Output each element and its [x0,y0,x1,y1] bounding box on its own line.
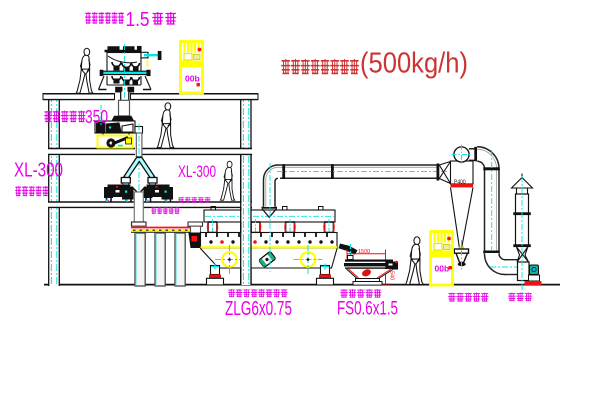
svg-text:00b: 00b [185,74,200,84]
svg-text:350: 350 [85,106,108,127]
svg-text:540: 540 [389,271,395,280]
svg-text:XL-300: XL-300 [178,163,216,181]
svg-text:P400: P400 [454,180,466,186]
svg-text:1500: 1500 [358,249,370,255]
svg-text:ZLG6x0.75: ZLG6x0.75 [225,298,292,320]
svg-text:1.5: 1.5 [126,8,150,31]
svg-text:(500kg/h): (500kg/h) [360,48,468,80]
svg-text:00b: 00b [435,264,450,274]
svg-text:FS0.6x1.5: FS0.6x1.5 [337,298,398,320]
svg-text:XL-300: XL-300 [14,160,63,182]
